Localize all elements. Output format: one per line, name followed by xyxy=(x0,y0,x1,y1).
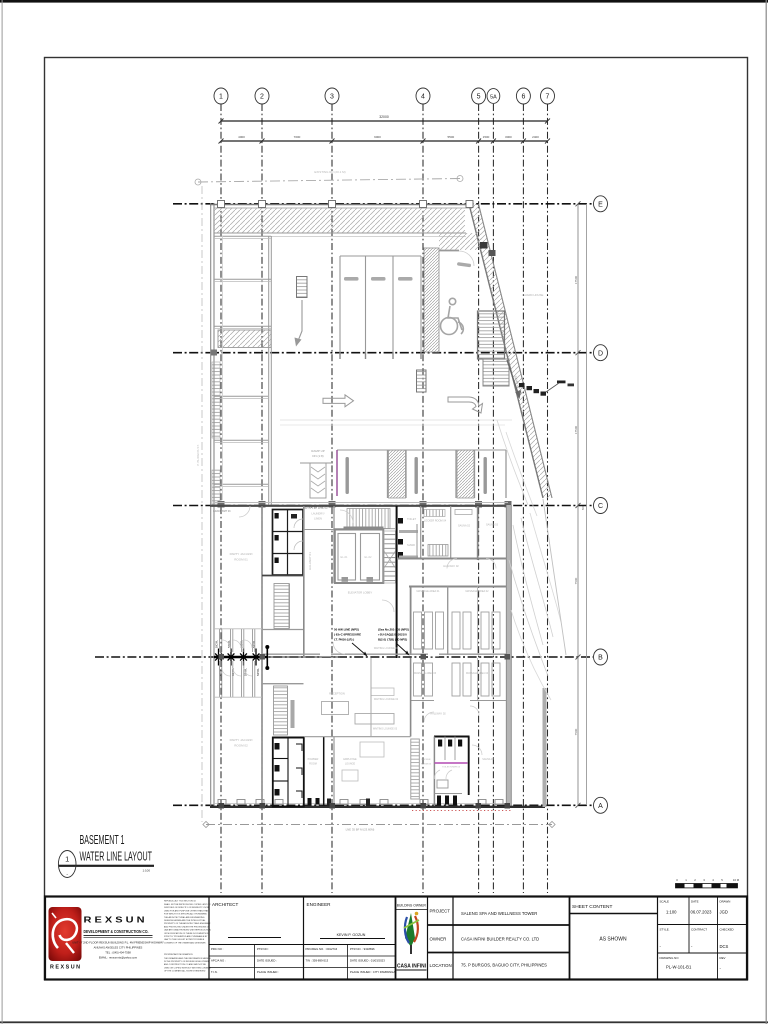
svg-text:UNIT - 7 2ND FLOOR REXSUN BUI: UNIT - 7 2ND FLOOR REXSUN BUILDING P.L. … xyxy=(72,941,164,945)
svg-text:LOUNGE: LOUNGE xyxy=(345,763,356,766)
svg-text:2: 2 xyxy=(260,94,264,101)
svg-text:MASSAGE AREA 01: MASSAGE AREA 01 xyxy=(416,590,440,593)
svg-text:LOCKER ROOM 04: LOCKER ROOM 04 xyxy=(424,520,447,523)
svg-text:DATE: DATE xyxy=(691,900,699,904)
svg-text:7: 7 xyxy=(546,94,550,101)
svg-text:A: A xyxy=(598,803,603,810)
svg-text:AND CONSTRUCTION CO AND MAY NO: AND CONSTRUCTION CO AND MAY NOT BE xyxy=(164,963,206,966)
svg-text:PTR NO. : 9318696: PTR NO. : 9318696 xyxy=(350,947,375,951)
svg-text:REV: REV xyxy=(720,956,726,960)
svg-text:WAITING LOUNGE 01: WAITING LOUNGE 01 xyxy=(374,647,399,650)
svg-text:5A: 5A xyxy=(490,94,497,100)
svg-text:R E X S U N: R E X S U N xyxy=(50,965,80,971)
svg-text:10 M: 10 M xyxy=(733,878,740,882)
svg-text:STYLE.: STYLE. xyxy=(660,928,670,932)
svg-text:DATE ISSUED :: DATE ISSUED : xyxy=(257,959,277,963)
svg-text:(Sea No.201-305 (NPS): (Sea No.201-305 (NPS) xyxy=(378,628,409,632)
svg-text:EL-01: EL-01 xyxy=(341,555,348,559)
svg-text:DN (1:8): DN (1:8) xyxy=(312,454,323,458)
svg-text:LNE 35 BF M (23.60M): LNE 35 BF M (23.60M) xyxy=(346,828,375,832)
svg-text:ANUNAS ANGELES CITY PHILIPPI: ANUNAS ANGELES CITY PHILIPPINES xyxy=(94,946,143,950)
svg-text:1: 1 xyxy=(65,855,69,864)
svg-text:PARTY JACUZZI: PARTY JACUZZI xyxy=(230,552,253,556)
svg-text:REPUBLIC ACT 7920 SECTION 34: REPUBLIC ACT 7920 SECTION 34 xyxy=(164,900,197,903)
svg-text:ROOM 02: ROOM 02 xyxy=(234,744,248,748)
svg-text:EXISTING RD (20.1 M): EXISTING RD (20.1 M) xyxy=(314,170,345,174)
svg-text:2400: 2400 xyxy=(532,135,539,139)
svg-text:OF THE COMPANY ALL RIGHTS RESE: OF THE COMPANY ALL RIGHTS RESERVED xyxy=(164,970,206,973)
svg-text:ENGINEER: ENGINEER xyxy=(307,902,332,907)
svg-text:PARTY JACUZZI: PARTY JACUZZI xyxy=(230,738,253,742)
svg-text:TIN : 359-899-513: TIN : 359-899-513 xyxy=(306,959,329,963)
svg-text:THE ARCHITECTURAL AND ENGINEER: THE ARCHITECTURAL AND ENGINEERING xyxy=(164,916,205,919)
svg-text:SHWR: SHWR xyxy=(407,543,415,547)
svg-text:PL-W-101-B1: PL-W-101-B1 xyxy=(666,965,692,970)
svg-text:R E X S U N: R E X S U N xyxy=(84,916,145,925)
svg-text:1:100: 1:100 xyxy=(142,869,150,873)
svg-text:DESIGNS HEREIN ARE THE INTELLE: DESIGNS HEREIN ARE THE INTELLECTUAL xyxy=(164,919,206,922)
svg-text:POWDER: POWDER xyxy=(308,758,319,761)
svg-text:DRAWN: DRAWN xyxy=(720,900,731,904)
svg-text:EL-02: EL-02 xyxy=(365,555,372,559)
svg-text:CASA INFINI: CASA INFINI xyxy=(397,964,426,970)
svg-text:BUILDING OWNER: BUILDING OWNER xyxy=(397,904,427,908)
svg-text:CASA INFINI BUILDER REALTY CO.: CASA INFINI BUILDER REALTY CO. LTD xyxy=(461,937,539,942)
svg-text:USED FOR ANY PURPOSE OTHER THA: USED FOR ANY PURPOSE OTHER THAN THAT xyxy=(164,909,209,912)
svg-text:75. P BURGOS, BAGUIO CITY, PHI: 75. P BURGOS, BAGUIO CITY, PHILIPPINES xyxy=(461,963,547,968)
svg-text:JGD: JGD xyxy=(720,910,728,915)
svg-text:3: 3 xyxy=(330,94,334,101)
svg-text:9000: 9000 xyxy=(374,135,381,139)
svg-text:TOILET/SHWR 03: TOILET/SHWR 03 xyxy=(442,767,461,769)
svg-text:IS THE PROPERTY OF REXSUN DEVE: IS THE PROPERTY OF REXSUN DEVELOPMENT xyxy=(164,961,211,963)
svg-text:WAITING LOUNGE 02: WAITING LOUNGE 02 xyxy=(374,698,399,701)
svg-text:CHECKED: CHECKED xyxy=(720,928,734,932)
svg-text:AS SHOWN: AS SHOWN xyxy=(599,937,627,943)
svg-text:APC/A NO :: APC/A NO : xyxy=(211,959,226,963)
svg-text:ELEVATOR LOBBY: ELEVATOR LOBBY xyxy=(348,591,373,595)
svg-text:+SU-SAQ(2.0)-2021/0: +SU-SAQ(2.0)-2021/0 xyxy=(378,633,407,637)
svg-text:5: 5 xyxy=(477,94,481,101)
svg-text:EMAIL : rexsunmix@yahoo.com: EMAIL : rexsunmix@yahoo.com xyxy=(99,956,138,960)
svg-text:LAW ANY UNAUTHORIZED USE REPRO: LAW ANY UNAUTHORIZED USE REPRODUCTION xyxy=(164,929,211,932)
svg-text:3000: 3000 xyxy=(505,135,512,139)
svg-text:FOR WHICH IT IS SPECIFICALLY F: FOR WHICH IT IS SPECIFICALLY FURNISHED xyxy=(164,913,208,916)
svg-text:DISPOSED OF DIRECTLY OR INDIRE: DISPOSED OF DIRECTLY OR INDIRECTLY NOR xyxy=(164,907,209,909)
svg-text:5500: 5500 xyxy=(447,135,454,139)
svg-text:PROPERTY OF THE ARCHITECT AND: PROPERTY OF THE ARCHITECT AND ENGINEER xyxy=(164,922,211,925)
svg-text:6: 6 xyxy=(521,94,525,101)
svg-text:B: B xyxy=(598,655,603,662)
svg-text:PLACE ISSUED :: PLACE ISSUED : xyxy=(257,970,279,974)
svg-text:HALLWAY 01: HALLWAY 01 xyxy=(308,552,312,570)
svg-text:1500: 1500 xyxy=(483,135,490,139)
svg-text:SAUNA 02: SAUNA 02 xyxy=(458,525,471,528)
svg-text:EMPLOYEE: EMPLOYEE xyxy=(343,758,357,761)
svg-text:LOCKER: LOCKER xyxy=(422,759,431,761)
svg-text:DCS: DCS xyxy=(720,944,729,949)
svg-text:50HWL: 50HWL xyxy=(257,667,260,676)
svg-text:LINEN: LINEN xyxy=(314,517,322,521)
svg-text:50 HW LINE (NPS): 50 HW LINE (NPS) xyxy=(334,628,359,632)
svg-text:50CWL: 50CWL xyxy=(216,639,219,648)
svg-text:DEVELOPMENT & CONSTRUCTION CO.: DEVELOPMENT & CONSTRUCTION CO. xyxy=(84,929,149,934)
svg-text:STRICTLY PROHIBITED AND PUNISH: STRICTLY PROHIBITED AND PUNISHABLE BY xyxy=(164,935,208,938)
svg-text:LOCATION: LOCATION xyxy=(430,963,452,968)
svg-text:DATE ISSUED : 01/03/2023: DATE ISSUED : 01/03/2023 xyxy=(350,959,385,963)
svg-text:PROPRIETARY INFORMATION: PROPRIETARY INFORMATION xyxy=(164,953,193,956)
svg-text:OWNER: OWNER xyxy=(430,937,447,942)
svg-text:SAUNA 03: SAUNA 03 xyxy=(482,758,494,761)
svg-text:THIS DRAWING AND THE INFORMATI: THIS DRAWING AND THE INFORMATION HEREIN xyxy=(164,957,211,960)
svg-text:TOILET: TOILET xyxy=(407,517,416,521)
svg-text:SHALL NOT BE REPRODUCED COPIED: SHALL NOT BE REPRODUCED COPIED LENT OR xyxy=(164,903,211,906)
svg-text:T.I.N.: T.I.N. xyxy=(211,970,218,974)
svg-text:SHEET CONTENT: SHEET CONTENT xyxy=(572,904,612,910)
svg-text:USED OR COPIED WITHOUT WRITTEN: USED OR COPIED WITHOUT WRITTEN CONSENT xyxy=(164,967,212,969)
svg-text:4000: 4000 xyxy=(238,135,245,139)
svg-text:( 63+C 6PRESSURE: ( 63+C 6PRESSURE xyxy=(334,633,361,637)
svg-text:LAW TO THE FULLEST EXTENT POSS: LAW TO THE FULLEST EXTENT POSSIBLE xyxy=(164,938,205,941)
svg-text:P. BURGOS ST.: P. BURGOS ST. xyxy=(196,444,200,466)
svg-text:AND PROTECTED UNDER THE PROVIS: AND PROTECTED UNDER THE PROVISIONS OF xyxy=(164,925,210,928)
svg-text:LAUNDRY/: LAUNDRY/ xyxy=(311,512,324,516)
svg-text:ARCHITECT: ARCHITECT xyxy=(212,902,238,907)
svg-text:WATER LINE LAYOUT: WATER LINE LAYOUT xyxy=(80,850,153,864)
svg-text:KEVIN P. GOZUN: KEVIN P. GOZUN xyxy=(337,933,366,937)
svg-text:WAITING LOUNGE 03: WAITING LOUNGE 03 xyxy=(373,728,398,731)
svg-text:CONTRACT: CONTRACT xyxy=(691,928,707,932)
svg-text:1:100: 1:100 xyxy=(666,910,677,915)
svg-text:500: 500 xyxy=(581,505,585,510)
svg-text:7000: 7000 xyxy=(294,135,301,139)
svg-text:MASSAGE AREA 03: MASSAGE AREA 03 xyxy=(414,672,437,675)
svg-text:GUARD HOUSE: GUARD HOUSE xyxy=(523,293,544,297)
svg-text:RECEPTION: RECEPTION xyxy=(329,692,345,696)
svg-text:BASEMENT 1: BASEMENT 1 xyxy=(80,833,125,847)
svg-text:D: D xyxy=(598,350,603,357)
svg-text:7500: 7500 xyxy=(574,728,578,735)
svg-text:OR MODIFICATION OF THESE DOCUM: OR MODIFICATION OF THESE DOCUMENTS IS xyxy=(164,932,209,935)
svg-text:32000: 32000 xyxy=(379,115,389,119)
svg-text:ROOM: ROOM xyxy=(309,763,316,766)
svg-text:7500: 7500 xyxy=(574,577,578,584)
svg-text:PRC/REG NO. : 0012716: PRC/REG NO. : 0012716 xyxy=(306,947,338,951)
svg-text:C: C xyxy=(598,503,603,510)
svg-text:DRAWING NO: DRAWING NO xyxy=(660,956,680,960)
svg-text:17500: 17500 xyxy=(574,425,578,434)
svg-text:HALLWAY 02: HALLWAY 02 xyxy=(443,564,459,568)
svg-text:LT. PN16 (LR) ): LT. PN16 (LR) ) xyxy=(334,638,354,642)
svg-text:PROJECT: PROJECT xyxy=(430,909,451,914)
svg-text:4: 4 xyxy=(421,94,425,101)
svg-text:PTR NO :: PTR NO : xyxy=(257,947,269,951)
svg-text:ROOM 05: ROOM 05 xyxy=(421,764,432,766)
svg-text:PLACE ISSUED : CITY PAMPANGA: PLACE ISSUED : CITY PAMPANGA xyxy=(350,970,395,974)
svg-text:CONSENT OF THE OWNER AND DESIG: CONSENT OF THE OWNER AND DESIGNER xyxy=(164,941,206,944)
svg-text:06.07.2023: 06.07.2023 xyxy=(691,910,713,915)
svg-text:1: 1 xyxy=(219,94,223,101)
svg-text:GRADE BMT 03: GRADE BMT 03 xyxy=(213,510,231,513)
svg-text:RAMP UP: RAMP UP xyxy=(311,449,325,453)
svg-text:SAUNA 03: SAUNA 03 xyxy=(486,524,499,527)
svg-text:17500: 17500 xyxy=(574,275,578,284)
svg-text:SCALE: SCALE xyxy=(660,900,670,904)
svg-text:ROOM 01: ROOM 01 xyxy=(234,558,248,562)
svg-text:SALENG SPA AND WELLNESS TOWER: SALENG SPA AND WELLNESS TOWER xyxy=(461,911,537,916)
svg-text:E: E xyxy=(598,201,603,208)
svg-text:TEL : (045) 404-7598: TEL : (045) 404-7598 xyxy=(105,951,131,955)
svg-text:B(2.0) LT(B) | ID NPS): B(2.0) LT(B) | ID NPS) xyxy=(378,638,407,642)
svg-text:PRC NO :: PRC NO : xyxy=(211,947,224,951)
